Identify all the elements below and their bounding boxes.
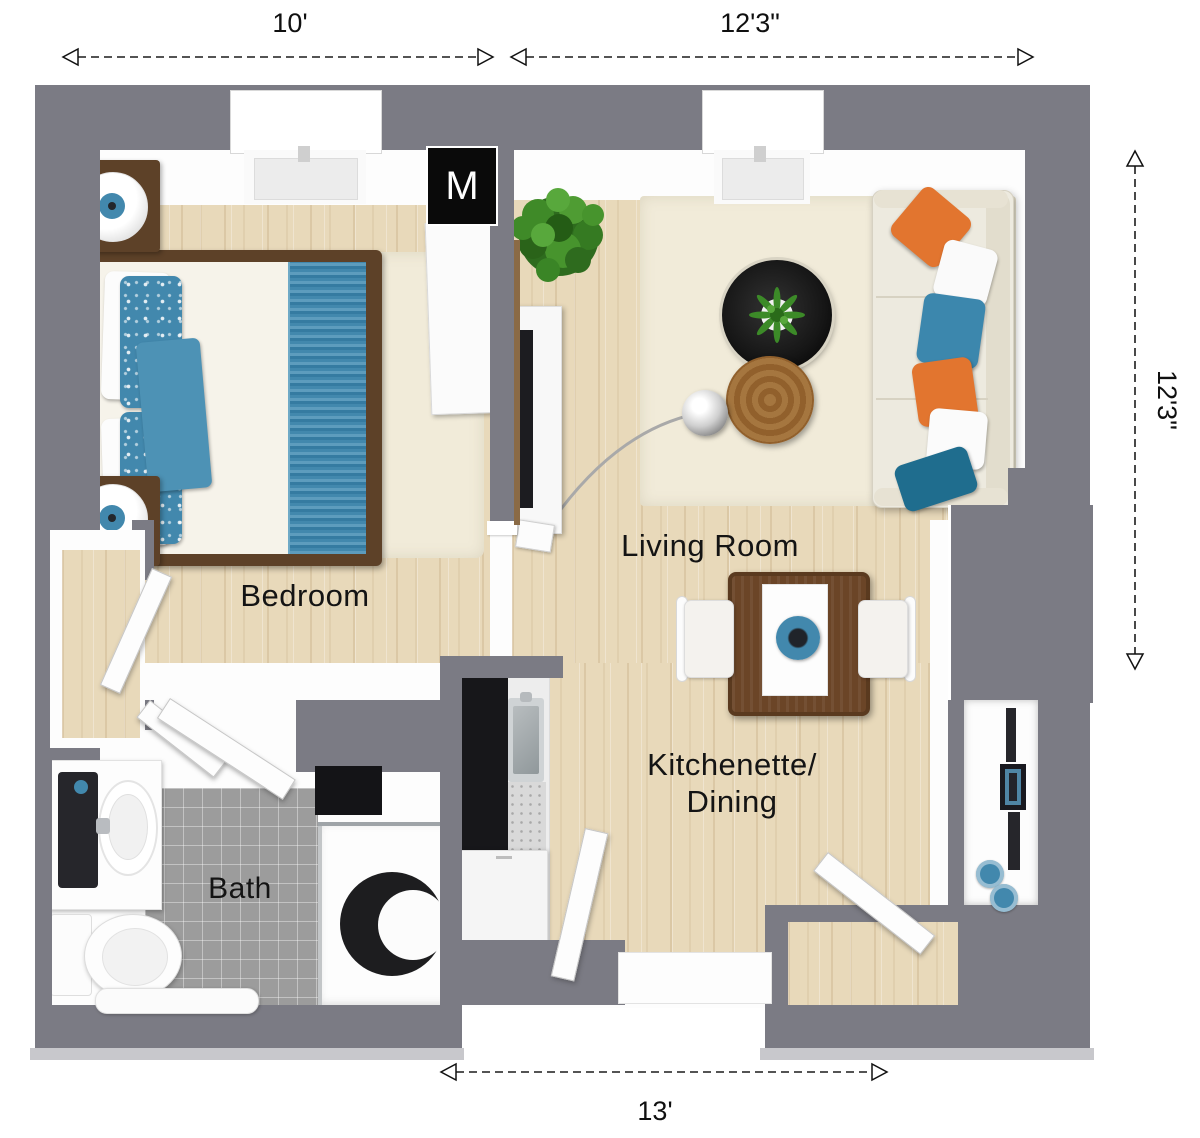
floor-lamp-sphere bbox=[682, 390, 728, 436]
dining-centerpiece-bowl bbox=[776, 616, 820, 660]
bedroom-window-frame bbox=[254, 158, 358, 200]
coffee-table-wood bbox=[726, 356, 814, 444]
dimension-label-right: 12'3" bbox=[1148, 330, 1182, 470]
plant-on-table-icon bbox=[745, 283, 809, 347]
mechanical-closet-box: M bbox=[426, 146, 498, 226]
right-wall-niche-left bbox=[948, 700, 964, 912]
living-room-label: Living Room bbox=[560, 528, 860, 564]
top-wall bbox=[35, 85, 1090, 150]
divider-wall-cap bbox=[487, 521, 517, 535]
bed-pillow-accent bbox=[136, 337, 213, 492]
right-wall-step-b bbox=[948, 505, 1093, 703]
bath-top-wall bbox=[296, 700, 462, 772]
base-shadow-right bbox=[760, 1048, 1094, 1060]
mechanical-closet-label: M bbox=[445, 164, 478, 209]
bedroom-label: Bedroom bbox=[180, 578, 430, 614]
sofa-backrest bbox=[986, 194, 1010, 502]
right-wall-step-a bbox=[1008, 468, 1090, 508]
dimension-line-right bbox=[1124, 148, 1146, 672]
shower-drain-cut bbox=[378, 890, 448, 960]
kitchen-top-wall bbox=[455, 656, 563, 678]
tv-screen bbox=[518, 330, 533, 508]
bed-footboard bbox=[366, 254, 380, 562]
right-wall-niche-right bbox=[1038, 700, 1090, 912]
kitchen-sink-basin bbox=[513, 706, 539, 774]
bottom-wall-mid bbox=[440, 940, 625, 1005]
base-shadow-left bbox=[30, 1048, 464, 1060]
kitchenette-label-line-1: Kitchenette/ bbox=[612, 746, 852, 783]
dimension-line-top-right bbox=[508, 46, 1036, 68]
towel-bar bbox=[95, 988, 259, 1014]
niche-picture-frame bbox=[1000, 764, 1026, 810]
table-lamp-top-finial bbox=[108, 202, 116, 210]
bedroom-window bbox=[230, 90, 382, 154]
left-wall-lower bbox=[35, 752, 52, 1048]
kitchen-faucet bbox=[520, 692, 532, 702]
right-wall-upper bbox=[1025, 85, 1090, 475]
entry-threshold bbox=[618, 952, 772, 1004]
living-window-handle bbox=[754, 146, 766, 162]
kitchen-cabinet bbox=[460, 850, 548, 944]
bath-label: Bath bbox=[175, 872, 305, 906]
divider-wood-trim bbox=[514, 240, 520, 525]
bath-dark-niche bbox=[315, 766, 382, 815]
toilet-seat bbox=[102, 928, 168, 986]
bed-blanket bbox=[288, 262, 366, 554]
floorplan-canvas: M 10' 12'3" 13' 12'3" Bedroom Living Roo… bbox=[0, 0, 1200, 1138]
niche-dark-strip bbox=[1008, 812, 1020, 870]
living-window bbox=[702, 90, 824, 154]
niche-plate-2 bbox=[990, 884, 1018, 912]
bedroom-window-handle bbox=[298, 146, 310, 162]
dimension-line-top-left bbox=[60, 46, 496, 68]
kitchen-cabinet-handle bbox=[496, 856, 512, 859]
vanity-cup bbox=[74, 780, 88, 794]
media-device bbox=[515, 519, 555, 552]
kitchenette-label-line-2: Dining bbox=[612, 783, 852, 820]
shower-glass-top bbox=[318, 822, 458, 826]
living-window-frame bbox=[722, 158, 804, 200]
vanity-sink-basin bbox=[108, 794, 148, 860]
shower-glass-panel bbox=[318, 824, 322, 1005]
dimension-label-bottom: 13' bbox=[570, 1096, 740, 1127]
table-lamp-bottom-finial bbox=[108, 514, 116, 522]
dimension-label-top-right: 12'3" bbox=[660, 8, 840, 39]
dimension-line-bottom bbox=[438, 1061, 890, 1083]
vanity-faucet bbox=[96, 818, 110, 834]
dining-chair-right-seat bbox=[858, 600, 908, 678]
niche-shelf-item bbox=[1006, 708, 1016, 762]
kitchen-counter-speckle bbox=[508, 782, 546, 850]
kitchen-tall-unit bbox=[462, 678, 508, 850]
dining-chair-left-seat bbox=[684, 600, 734, 678]
kitchenette-dining-label: Kitchenette/ Dining bbox=[612, 746, 852, 820]
dimension-label-top-left: 10' bbox=[210, 8, 370, 39]
